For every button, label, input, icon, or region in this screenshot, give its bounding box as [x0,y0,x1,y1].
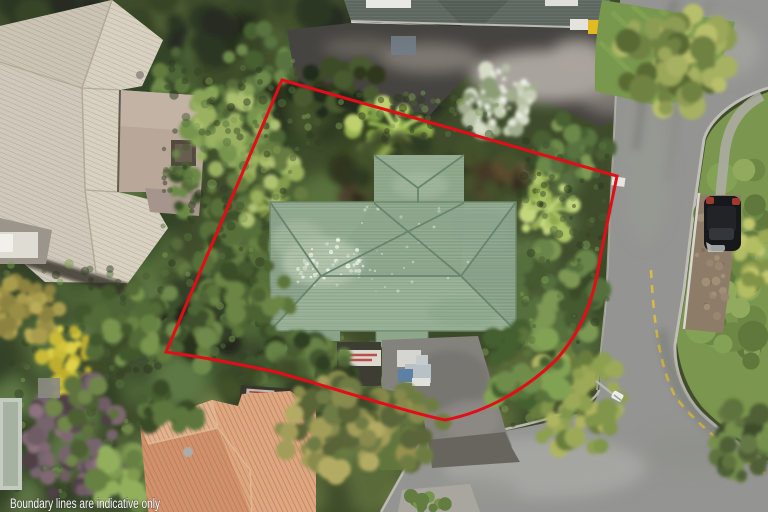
svg-text:Boundary lines are indicative: Boundary lines are indicative only [10,496,160,511]
